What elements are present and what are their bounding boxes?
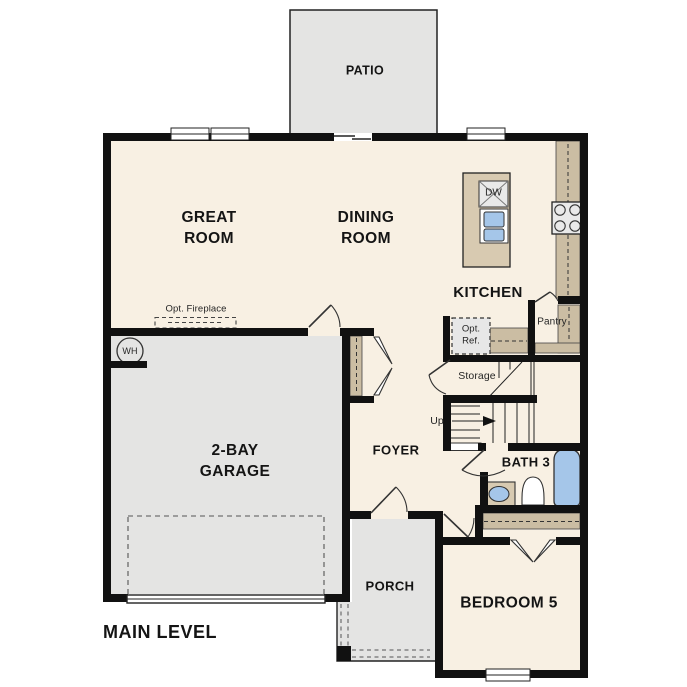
water-heater-label: WH <box>122 345 137 357</box>
sliding-patio-door <box>334 133 372 141</box>
stairs-up-label: Up <box>430 414 444 428</box>
room-label-storage: Storage <box>458 369 495 383</box>
room-label-garage: 2-BAY GARAGE <box>200 441 270 483</box>
bedroom5-closet <box>483 513 580 529</box>
bathtub <box>554 449 580 506</box>
room-label-patio: PATIO <box>346 63 384 80</box>
room-label-bedroom5: BEDROOM 5 <box>460 594 557 615</box>
opt-ref-label: Opt. Ref. <box>462 324 480 349</box>
dishwasher-label: DW <box>485 186 502 199</box>
room-label-dining-room: DINING ROOM <box>338 208 395 250</box>
porch-post <box>337 646 351 661</box>
garage-door <box>127 595 325 603</box>
toilet <box>522 477 544 505</box>
pantry-shelf-bottom <box>535 343 580 353</box>
room-label-pantry: Pantry <box>537 315 567 328</box>
island-sink <box>480 209 508 243</box>
floor-plan-drawing <box>0 0 687 687</box>
room-label-bath3: BATH 3 <box>502 453 550 470</box>
stair-landing <box>448 443 481 451</box>
opt-fireplace-label: Opt. Fireplace <box>165 304 226 317</box>
room-label-great-room: GREAT ROOM <box>181 208 236 250</box>
floor-plan: PATIO GREAT ROOM DINING ROOM KITCHEN Pan… <box>0 0 687 687</box>
range-stove <box>552 202 583 234</box>
fireplace-opt <box>155 318 236 329</box>
room-label-foyer: FOYER <box>373 441 420 458</box>
room-label-kitchen: KITCHEN <box>453 283 522 303</box>
level-title: MAIN LEVEL <box>103 620 217 644</box>
vanity-sink <box>489 487 509 502</box>
room-label-porch: PORCH <box>366 577 415 594</box>
